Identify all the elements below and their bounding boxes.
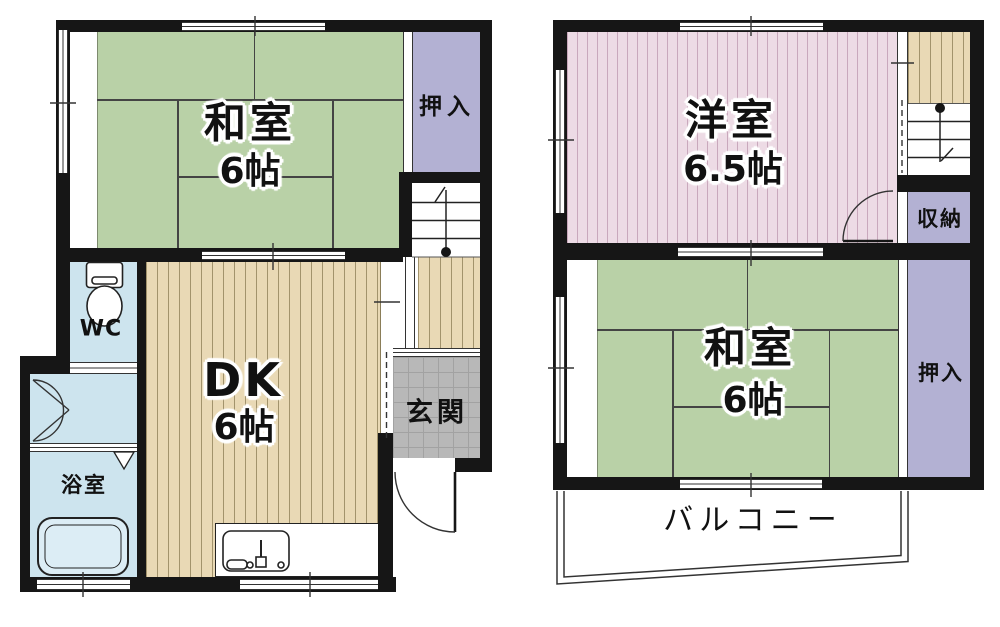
label-oshiire-2f: 押入 bbox=[918, 357, 964, 387]
floor-plan-canvas: 和室 6帖 押入 WC 浴室 DK 6帖 玄関 洋室 6.5帖 収納 和室 6帖… bbox=[0, 0, 1000, 627]
label-bathroom: 浴室 bbox=[61, 469, 107, 499]
label-washitsu-2f-size: 6帖 bbox=[722, 371, 783, 423]
tatami-line bbox=[332, 99, 334, 248]
label-oshiire-1f: 押入 bbox=[419, 87, 475, 121]
washitsu-2f-floor-base bbox=[567, 260, 597, 477]
window-yoshitsu-top bbox=[680, 22, 823, 31]
wall-wc-dk bbox=[137, 262, 146, 577]
tatami-line bbox=[672, 329, 674, 477]
wall-oshiire-stairs bbox=[399, 172, 492, 183]
label-balcony: バルコニー bbox=[663, 495, 842, 539]
window-bathroom bbox=[37, 579, 130, 590]
room-washroom bbox=[30, 374, 137, 443]
label-yoshitsu-2f-size: 6.5帖 bbox=[683, 140, 783, 192]
label-dk-size: 6帖 bbox=[213, 398, 274, 450]
genkan-side-strip bbox=[381, 348, 393, 433]
window-washitsu-1f-left bbox=[58, 30, 68, 173]
wall-porch-left bbox=[378, 433, 393, 592]
dk-hall-opening bbox=[381, 257, 405, 348]
stairs-2f-area bbox=[908, 103, 970, 175]
label-wc: WC bbox=[80, 317, 122, 342]
window-washitsu-2f-left bbox=[555, 297, 565, 443]
wall-stairs-shunou bbox=[897, 175, 970, 192]
entrance-door-swing-icon bbox=[395, 472, 455, 532]
stairs-1f-area bbox=[412, 183, 480, 257]
oshiire-2f-fusuma-door bbox=[898, 260, 908, 477]
wc-door bbox=[65, 362, 137, 374]
wall-1f-left-lower bbox=[20, 356, 30, 592]
shunou-door bbox=[897, 192, 908, 243]
dk-hall-sliding-door bbox=[405, 257, 415, 348]
washroom-bath-door bbox=[30, 443, 137, 452]
sliding-door-yoshitsu-washitsu bbox=[678, 247, 823, 257]
genkan-step-edge bbox=[393, 348, 480, 357]
stair-landing-wood bbox=[908, 32, 970, 103]
wall-stairs-left bbox=[399, 183, 412, 257]
label-genkan: 玄関 bbox=[406, 391, 468, 430]
wall-1f-right bbox=[480, 20, 492, 472]
room-wc bbox=[70, 262, 137, 362]
label-yoshitsu-2f: 洋室 bbox=[685, 87, 777, 148]
corridor-wood-floor bbox=[418, 257, 480, 348]
wall-1f-entry-corner bbox=[455, 458, 492, 472]
entrance-door-opening bbox=[393, 458, 455, 472]
label-washitsu-2f: 和室 bbox=[704, 315, 796, 376]
oshiire-1f-fusuma-door bbox=[403, 32, 413, 172]
tatami-line bbox=[177, 99, 179, 248]
sliding-door-washitsu-dk bbox=[202, 251, 345, 260]
window-dk-bottom bbox=[240, 579, 378, 590]
balcony-sliding-door bbox=[680, 479, 822, 489]
label-shunou-2f: 収納 bbox=[917, 203, 963, 233]
tatami-line bbox=[829, 329, 831, 477]
label-washitsu-1f-size: 6帖 bbox=[219, 142, 280, 194]
window-washitsu-1f-top bbox=[182, 22, 325, 31]
stair-rail-strip bbox=[897, 32, 908, 175]
window-yoshitsu-left bbox=[555, 70, 565, 213]
kitchen-counter bbox=[215, 523, 390, 577]
